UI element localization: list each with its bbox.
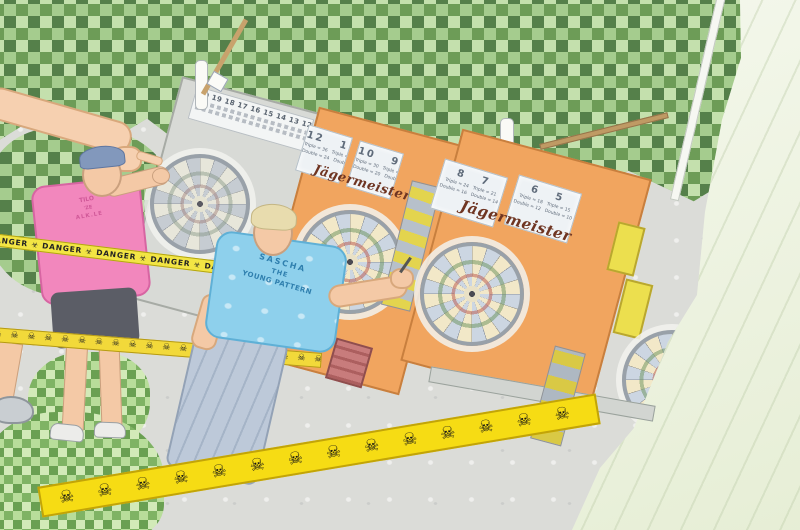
dartboard-right: [420, 242, 524, 346]
pink-player-shoe: [94, 421, 127, 438]
pink-player-hand: [152, 168, 170, 184]
pink-player-leg: [62, 339, 89, 430]
pink-player-leg: [99, 342, 123, 429]
darts-scene: 20 19 18 17 16 15 14 13 12 11 12 11 Trip…: [0, 0, 800, 530]
